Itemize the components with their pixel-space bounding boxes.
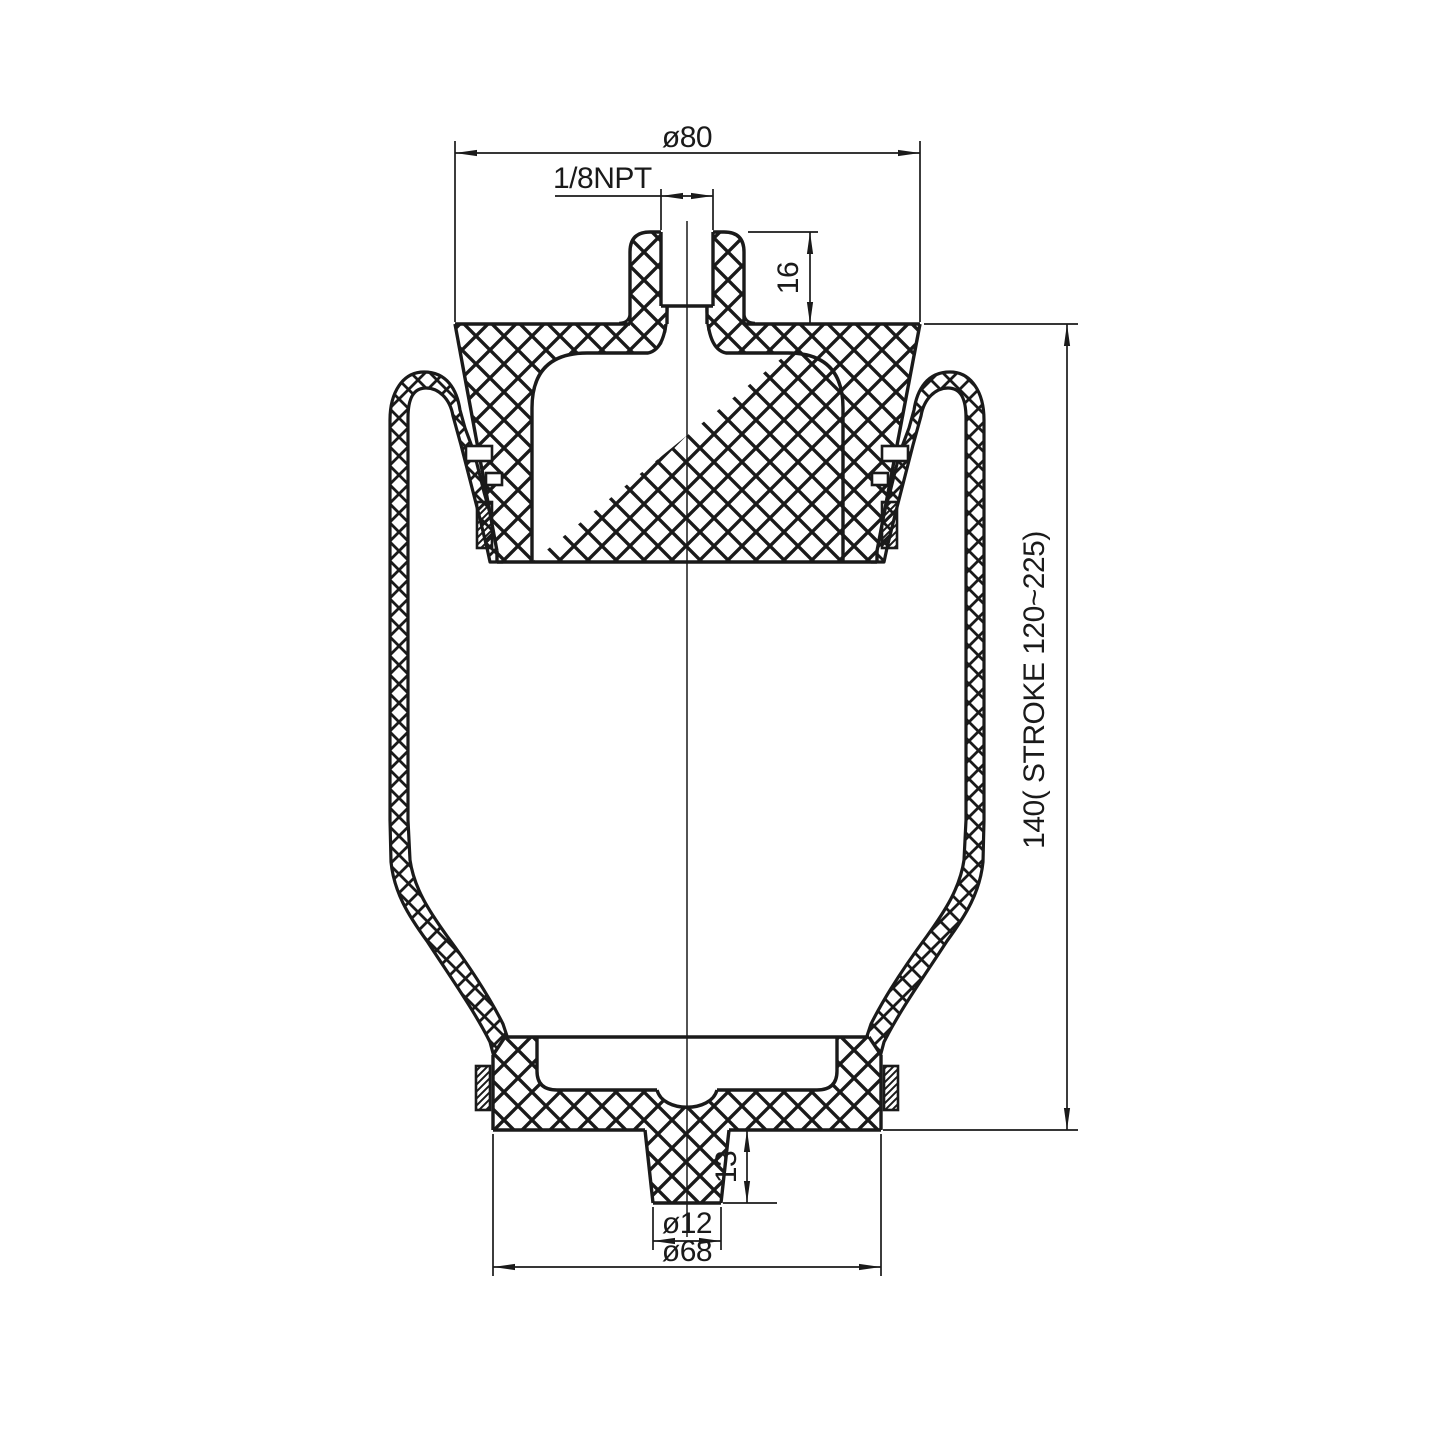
dim-port-thread: 1/8NPT (553, 162, 713, 230)
dim-top-diameter-label: ø80 (662, 121, 712, 154)
clamp-ring-bottom-left (476, 1066, 490, 1110)
cap-step-notch-right (882, 446, 908, 461)
dim-port-thread-label: 1/8NPT (553, 162, 652, 195)
dim-base-diameter-label: ø68 (662, 1235, 712, 1268)
cap-step-notch-left (466, 446, 492, 461)
clamp-ring-top-right (882, 502, 897, 548)
clamp-ring-bottom-right (884, 1066, 898, 1110)
clamp-ring-top-left (477, 502, 492, 548)
air-spring-section-drawing: ø80 1/8NPT 16 140( STROKE 120~225) 13 ø1… (0, 0, 1445, 1445)
cap-step-notch-left-2 (486, 473, 502, 485)
dim-stud-height-label: 13 (710, 1151, 743, 1183)
drawing-canvas: ø80 1/8NPT 16 140( STROKE 120~225) 13 ø1… (0, 0, 1445, 1445)
dim-overall-height-label: 140( STROKE 120~225) (1018, 531, 1051, 849)
dim-boss-height-label: 16 (772, 262, 805, 294)
cap-step-notch-right-2 (872, 473, 888, 485)
dim-boss-height: 16 (748, 232, 818, 324)
